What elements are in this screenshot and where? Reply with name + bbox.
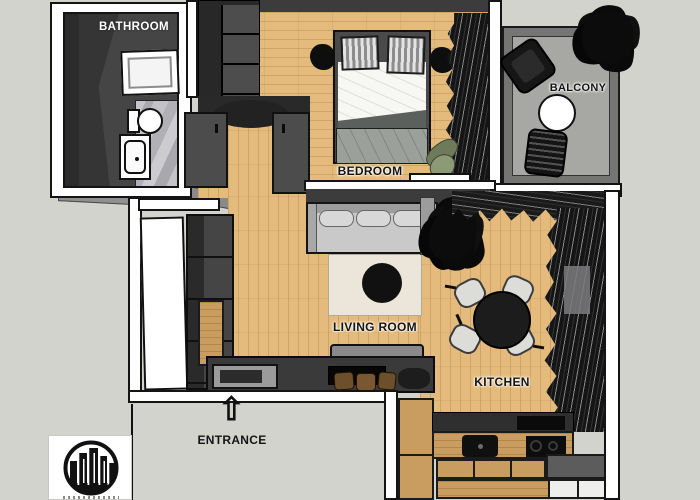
media-cushion <box>356 373 376 391</box>
media-cushion <box>333 371 354 390</box>
room-label-bathroom: BATHROOM <box>88 21 180 33</box>
bedside-stool <box>310 44 335 70</box>
toilet-bowl <box>137 108 163 134</box>
countertop-inset <box>517 416 565 430</box>
living-bottom-wall <box>128 390 390 403</box>
bathroom-wall-shade <box>65 14 79 186</box>
entrance-label: ENTRANCE <box>180 433 284 447</box>
cabinet-handle <box>282 124 285 133</box>
burner <box>530 440 542 452</box>
kitchen-tall-cabinet <box>398 398 434 500</box>
closet-front <box>221 5 259 99</box>
bathroom-sink <box>119 134 151 180</box>
balcony-table <box>538 94 576 132</box>
hall-cabinet-left <box>184 112 228 188</box>
bedroom-closet <box>198 0 260 102</box>
room-label-bedroom: BEDROOM <box>320 164 420 178</box>
bathtub-basin <box>127 56 172 89</box>
city-skyline-logo-icon <box>60 439 122 499</box>
bed-pillow <box>386 35 425 74</box>
bedroom-balcony-wall <box>488 0 502 190</box>
room-label-kitchen: KITCHEN <box>452 375 552 389</box>
cabinet-handle <box>215 124 218 133</box>
kitchen-window-gap <box>564 266 590 314</box>
dining-table <box>473 291 531 349</box>
room-label-living: LIVING ROOM <box>312 320 438 334</box>
kitchen-drawer-wide <box>436 479 550 499</box>
logo <box>48 435 132 500</box>
bathtub <box>120 49 180 96</box>
kitchen-white-cabinet <box>548 479 608 499</box>
logo-text-sliver <box>63 496 119 499</box>
sofa-cushion <box>356 210 391 227</box>
sink-drain <box>135 157 139 161</box>
kitchen-sink <box>462 435 498 457</box>
media-cushion <box>377 371 397 391</box>
tv-backrest <box>330 344 424 358</box>
kitchen-drawer-row <box>436 459 546 479</box>
burner <box>548 441 558 451</box>
coffee-table <box>362 263 402 303</box>
sofa <box>306 202 438 254</box>
entrance-arrow-icon: ⇧ <box>218 393 245 425</box>
bed <box>333 30 431 164</box>
bedroom-left-wall <box>186 0 198 98</box>
door-leaf <box>140 216 189 390</box>
faucet-dot <box>478 444 483 449</box>
media-tray-inner <box>220 370 262 383</box>
media-tray <box>212 364 278 389</box>
room-label-balcony: BALCONY <box>536 82 620 94</box>
bed-blanket-light <box>336 128 428 164</box>
bed-pillow <box>340 35 379 70</box>
chair-cushion <box>510 48 546 84</box>
floorplan: BATHROOM BEDROOM <box>0 0 700 500</box>
sofa-arm <box>308 204 317 252</box>
balcony-chair <box>523 128 568 179</box>
kitchen-gray-cabinet <box>546 454 608 479</box>
sofa-cushion <box>319 210 354 227</box>
kitchen-countertop <box>432 412 574 433</box>
hall-corner-wall <box>138 198 220 211</box>
kitchen-left-wall <box>384 390 398 500</box>
kitchen-right-wall <box>604 190 620 500</box>
toilet <box>127 108 163 134</box>
media-dark-lump <box>398 368 430 389</box>
